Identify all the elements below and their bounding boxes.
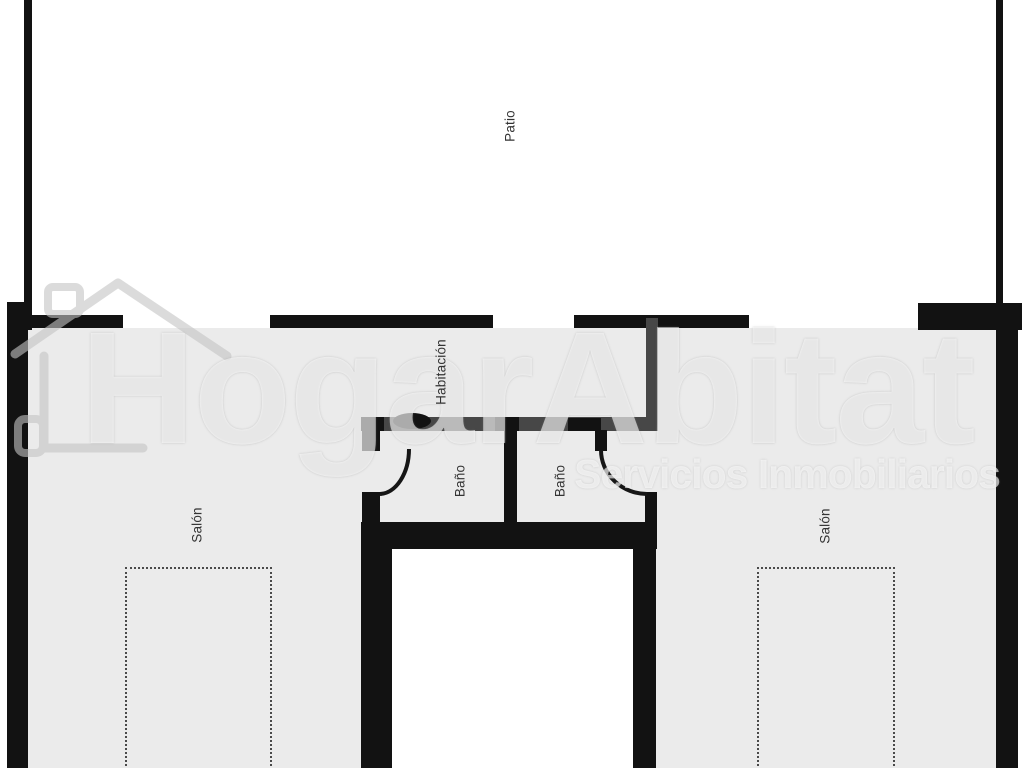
wall-shaft-left xyxy=(361,548,392,768)
room-label-patio: Patio xyxy=(503,110,518,142)
wall-facade-segment-2 xyxy=(270,315,493,328)
room-label-bano-right: Baño xyxy=(553,465,568,497)
wall-cap-left xyxy=(361,417,384,431)
wall-exterior-left xyxy=(7,302,28,768)
wall-facade-segment-4 xyxy=(918,303,1022,330)
wall-exterior-right xyxy=(996,303,1018,768)
wall-patio-left xyxy=(24,0,32,330)
wall-bano-left-upper xyxy=(362,430,380,451)
wall-facade-segment-1 xyxy=(24,315,123,328)
wall-shaft-right xyxy=(633,548,656,768)
room-label-habitacion: Habitación xyxy=(434,339,449,405)
room-label-bano-left: Baño xyxy=(453,465,468,497)
wall-habitacion-right xyxy=(646,318,658,431)
room-label-salon-left: Salón xyxy=(190,507,205,543)
wall-bano-left-lower xyxy=(362,492,380,524)
wall-shaft-top xyxy=(361,522,657,549)
wall-bano-divider xyxy=(504,430,517,524)
door-marker-habitacion xyxy=(393,413,431,429)
room-label-salon-right: Salón xyxy=(818,508,833,544)
dashed-area-left-salon xyxy=(125,567,272,768)
wall-bano-right-doorstub xyxy=(595,430,607,451)
dashed-area-right-salon xyxy=(757,567,895,768)
floor-plan: HogarAbitat Servicios Inmobiliarios Pati… xyxy=(0,0,1024,768)
wall-bano-right-lower xyxy=(645,492,657,524)
wall-patio-right xyxy=(996,0,1003,305)
light-shaft-interior xyxy=(392,548,637,768)
wall-cap-middle xyxy=(495,417,519,431)
wall-facade-segment-3 xyxy=(574,315,749,328)
